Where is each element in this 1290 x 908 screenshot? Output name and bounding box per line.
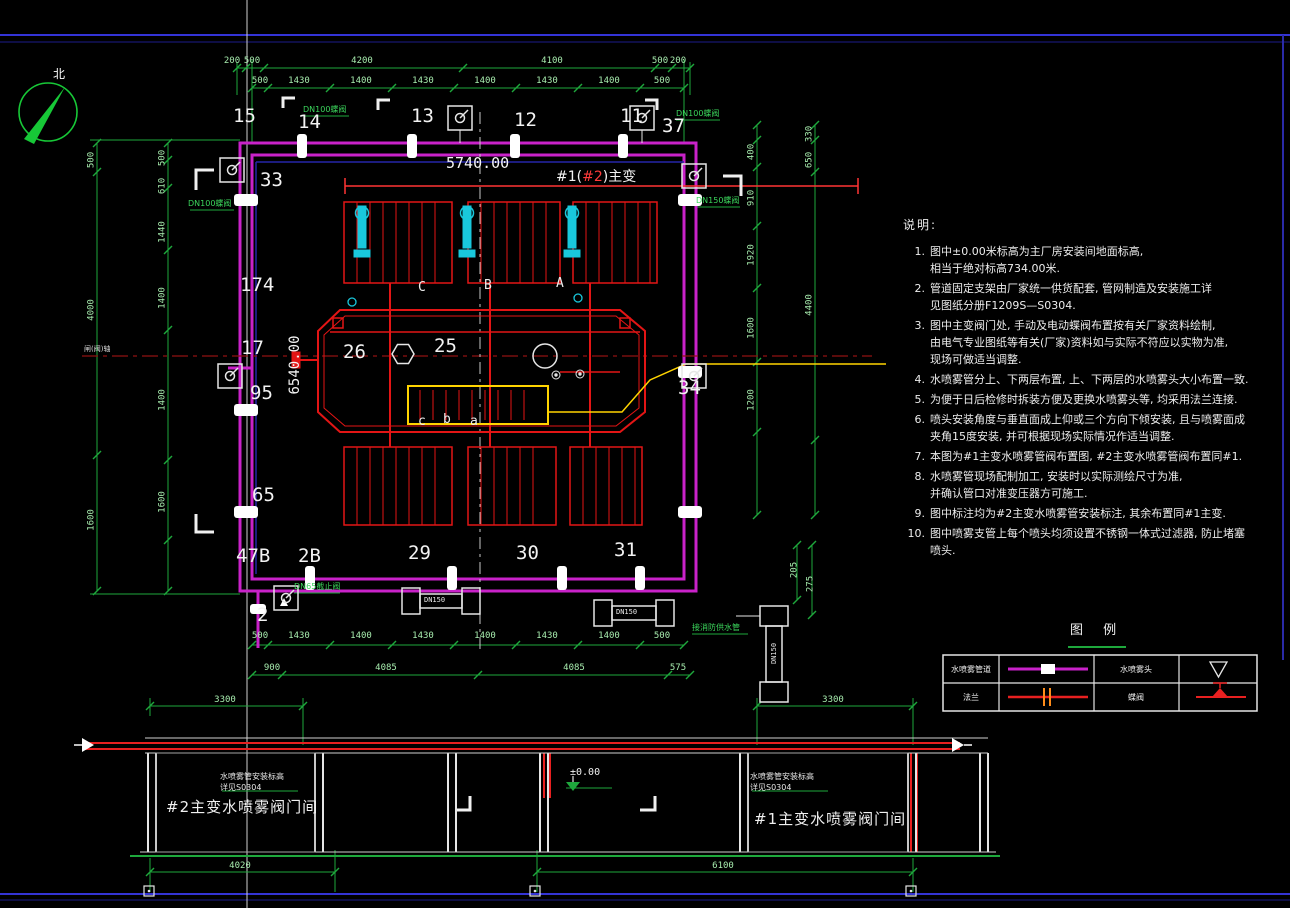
pipe-annotation: 接消防供水管 xyxy=(692,624,740,632)
phase-letter: B xyxy=(484,279,492,292)
note-text: 图中喷雾支管上每个喷头均须设置不锈钢一体式过滤器, 防止堵塞喷头. xyxy=(930,525,1253,559)
node-label: 33 xyxy=(260,171,283,190)
legend-title: 图 例 xyxy=(1070,624,1124,637)
dim-label: 4200 xyxy=(351,57,373,66)
dim-label: 500 xyxy=(88,152,97,168)
dim-label: 400 xyxy=(748,144,757,160)
dim-label: 4085 xyxy=(563,664,585,673)
note-text: 水喷雾管分上、下两层布置, 上、下两层的水喷雾头大小布置一致. xyxy=(930,371,1249,388)
note-number: 10. xyxy=(903,525,925,559)
section-note: 水喷雾管安装标高 详见S0304 xyxy=(220,772,284,794)
side-dimension-label: 6540.00 xyxy=(288,335,302,394)
dim-label: 1430 xyxy=(288,632,310,641)
annotation-underlines xyxy=(190,116,828,791)
north-label: 北 xyxy=(53,68,65,80)
axis-label: 闸(阀)轴 xyxy=(84,346,110,353)
dim-label: 500 xyxy=(159,150,168,166)
note-number: 3. xyxy=(903,317,925,368)
phase-letter: A xyxy=(556,277,564,290)
dim-label: 1400 xyxy=(598,77,620,86)
note-text: 图中主变阀门处, 手动及电动蝶阀布置按有关厂家资料绘制, 由电气专业图纸等有关(… xyxy=(930,317,1228,368)
dim-label: 1400 xyxy=(350,632,372,641)
dim-label: 610 xyxy=(159,178,168,194)
dim-label: 575 xyxy=(670,664,686,673)
dim-label: 910 xyxy=(748,190,757,206)
dim-label: 330 xyxy=(806,126,815,142)
note-text: 喷头安装角度与垂直面成上仰或三个方向下倾安装, 且与喷雾面成 夹角15度安装, … xyxy=(930,411,1245,445)
node-label: 14 xyxy=(298,113,321,132)
node-label: 26 xyxy=(343,343,366,362)
node-label: 30 xyxy=(516,544,539,563)
note-text: 图中±0.00米标高为主厂房安装间地面标高, 相当于绝对标高734.00米. xyxy=(930,243,1143,277)
dim-label: 1430 xyxy=(412,632,434,641)
note-text: 本图为#1主变水喷雾管阀布置图, #2主变水喷雾管阀布置同#1. xyxy=(930,448,1242,465)
dim-label: 275 xyxy=(807,576,816,592)
legend-label-pipe: 水喷雾管道 xyxy=(951,666,991,674)
main-dimension-label: 5740.00 xyxy=(446,156,509,171)
node-label: 37 xyxy=(662,117,685,136)
transformer-tag: #1(#2)主变 xyxy=(556,170,636,184)
valve-annotation: DN100蝶阀 xyxy=(188,200,231,208)
note-number: 4. xyxy=(903,371,925,388)
dim-label: 4000 xyxy=(88,299,97,321)
note-text: 管道固定支架由厂家统一供货配套, 管网制造及安装施工详 见图纸分册F1209S—… xyxy=(930,280,1212,314)
dim-label: 500 xyxy=(654,632,670,641)
transformer-tag-suffix: )主变 xyxy=(603,170,636,184)
node-label: 12 xyxy=(514,111,537,130)
note-number: 1. xyxy=(903,243,925,277)
node-label: 47B xyxy=(236,547,270,566)
spool-label: DN150 xyxy=(771,643,778,664)
legend-label-nozzle: 水喷雾头 xyxy=(1120,666,1152,674)
note-number: 5. xyxy=(903,391,925,408)
dim-label: 1920 xyxy=(748,244,757,266)
spool-label: DN150 xyxy=(424,597,445,604)
dim-label: 1600 xyxy=(748,317,757,339)
note-number: 7. xyxy=(903,448,925,465)
note-item: 7.本图为#1主变水喷雾管阀布置图, #2主变水喷雾管阀布置同#1. xyxy=(903,448,1253,465)
dim-label: 200 xyxy=(670,57,686,66)
phase-letter: a xyxy=(470,415,478,428)
note-number: 2. xyxy=(903,280,925,314)
note-item: 8.水喷雾管现场配制加工, 安装时以实际测绘尺寸为准, 并确认管口对准变压器方可… xyxy=(903,468,1253,502)
dim-label: 500 xyxy=(252,77,268,86)
dim-label: 500 xyxy=(252,632,268,641)
general-notes: 说明: 1.图中±0.00米标高为主厂房安装间地面标高, 相当于绝对标高734.… xyxy=(903,216,1253,562)
valve-room-label: #2主变水喷雾阀门间 xyxy=(166,800,318,815)
dim-label: 1430 xyxy=(412,77,434,86)
node-label: 11 xyxy=(620,107,643,126)
note-item: 9.图中标注均为#2主变水喷雾管安装标注, 其余布置同#1主变. xyxy=(903,505,1253,522)
node-label: 95 xyxy=(250,384,273,403)
level-marker-triangle xyxy=(566,782,580,791)
note-text: 为便于日后检修时拆装方便及更换水喷雾头等, 均采用法兰连接. xyxy=(930,391,1238,408)
dim-label: 1400 xyxy=(474,77,496,86)
node-label: 25 xyxy=(434,337,457,356)
spool-label: DN150 xyxy=(616,609,637,616)
dim-label: 1400 xyxy=(598,632,620,641)
node-label: 15 xyxy=(233,107,256,126)
plan-symbols xyxy=(392,344,584,379)
note-item: 1.图中±0.00米标高为主厂房安装间地面标高, 相当于绝对标高734.00米. xyxy=(903,243,1253,277)
node-label: 13 xyxy=(411,107,434,126)
dim-label: 4400 xyxy=(806,294,815,316)
dim-label: 1430 xyxy=(288,77,310,86)
note-item: 10.图中喷雾支管上每个喷头均须设置不锈钢一体式过滤器, 防止堵塞喷头. xyxy=(903,525,1253,559)
north-arrow-icon xyxy=(19,83,77,144)
note-item: 6.喷头安装角度与垂直面成上仰或三个方向下倾安装, 且与喷雾面成 夹角15度安装… xyxy=(903,411,1253,445)
node-label: 174 xyxy=(240,276,274,295)
node-label: 65 xyxy=(252,486,275,505)
valve-room-label: #1主变水喷雾阀门间 xyxy=(754,812,906,827)
dim-label: 1600 xyxy=(88,509,97,531)
note-number: 9. xyxy=(903,505,925,522)
dim-label: 3300 xyxy=(822,696,844,705)
note-number: 8. xyxy=(903,468,925,502)
legend-nozzle-symbol xyxy=(1210,662,1227,677)
valve-annotation: DN100蝶阀 xyxy=(303,106,346,114)
note-text: 水喷雾管现场配制加工, 安装时以实际测绘尺寸为准, 并确认管口对准变压器方可施工… xyxy=(930,468,1183,502)
dim-label: 1430 xyxy=(536,632,558,641)
legend-table-grid xyxy=(943,655,1257,711)
dim-label: 500 xyxy=(244,57,260,66)
note-text: 图中标注均为#2主变水喷雾管安装标注, 其余布置同#1主变. xyxy=(930,505,1226,522)
node-label: 2B xyxy=(298,547,321,566)
node-label: 31 xyxy=(614,541,637,560)
node-label: 2 xyxy=(257,606,268,625)
transformer-tag-number: #2 xyxy=(582,170,603,184)
legend-label-flange: 法兰 xyxy=(963,694,979,702)
valve-annotation: DN100蝶阀 xyxy=(676,110,719,118)
phase-letter: b xyxy=(443,413,451,426)
cad-drawing-canvas[interactable]: 北 5740.00 #1(#2)主变 6540.00 闸(阀)轴 15 14 1… xyxy=(0,0,1290,908)
phase-letter: c xyxy=(418,415,426,428)
dim-label: 900 xyxy=(264,664,280,673)
dim-label: 4100 xyxy=(541,57,563,66)
dim-label: 200 xyxy=(224,57,240,66)
legend-butterfly-valve-symbol xyxy=(1196,683,1246,697)
valve-annotation: DN65截止阀 xyxy=(294,583,340,591)
node-label: 34 xyxy=(678,379,701,398)
note-item: 5.为便于日后检修时拆装方便及更换水喷雾头等, 均采用法兰连接. xyxy=(903,391,1253,408)
dim-label: 1400 xyxy=(159,287,168,309)
phase-letter: C xyxy=(418,281,426,294)
dim-label: 6100 xyxy=(712,862,734,871)
dim-label: 500 xyxy=(654,77,670,86)
notes-title: 说明: xyxy=(903,216,1253,235)
dim-label: 1430 xyxy=(536,77,558,86)
node-label: 17 xyxy=(241,339,264,358)
dim-label: 1600 xyxy=(159,491,168,513)
valve-annotation: DN150蝶阀 xyxy=(696,197,739,205)
section-note: 水喷雾管安装标高 详见S0304 xyxy=(750,772,814,794)
transformer-tag-prefix: #1( xyxy=(556,170,582,184)
dim-label: 1400 xyxy=(474,632,496,641)
dim-label: 1200 xyxy=(748,389,757,411)
legend-label-valve: 蝶阀 xyxy=(1128,694,1144,702)
note-item: 2.管道固定支架由厂家统一供货配套, 管网制造及安装施工详 见图纸分册F1209… xyxy=(903,280,1253,314)
node-label: 29 xyxy=(408,544,431,563)
dim-label: 4020 xyxy=(229,862,251,871)
dim-label: 1440 xyxy=(159,221,168,243)
dim-label: 1400 xyxy=(350,77,372,86)
note-item: 4.水喷雾管分上、下两层布置, 上、下两层的水喷雾头大小布置一致. xyxy=(903,371,1253,388)
note-item: 3.图中主变阀门处, 手动及电动蝶阀布置按有关厂家资料绘制, 由电气专业图纸等有… xyxy=(903,317,1253,368)
dim-label: 3300 xyxy=(214,696,236,705)
dim-label: 1400 xyxy=(159,389,168,411)
dim-label: 205 xyxy=(791,562,800,578)
dim-label: 650 xyxy=(806,152,815,168)
level-label: ±0.00 xyxy=(570,768,600,778)
note-number: 6. xyxy=(903,411,925,445)
dim-label: 500 xyxy=(652,57,668,66)
dim-label: 4085 xyxy=(375,664,397,673)
